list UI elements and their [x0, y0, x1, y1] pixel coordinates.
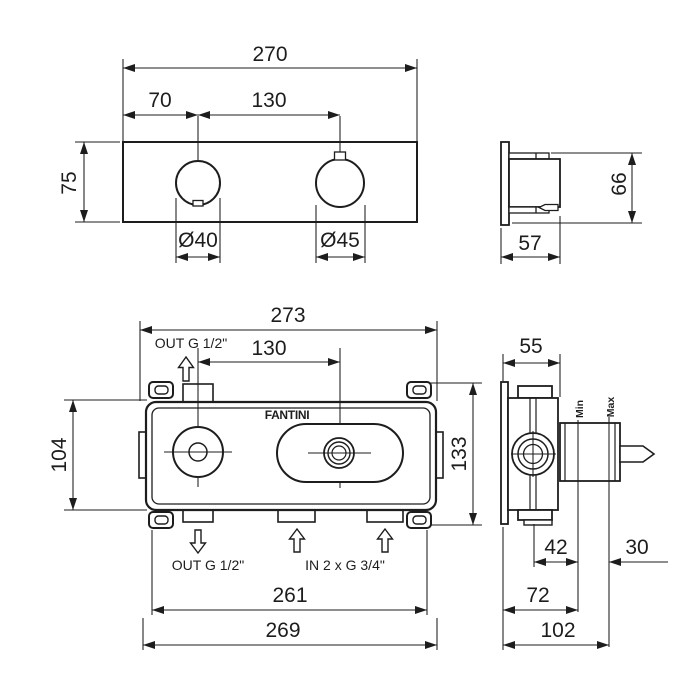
rough-side-top-flange — [518, 386, 552, 398]
rough-side-wall-plate — [501, 382, 508, 524]
dim-side-depth-label: 57 — [518, 232, 541, 255]
dim-knob-centers-label: 130 — [251, 89, 286, 112]
knob-right-index — [335, 152, 346, 160]
port-boss-bottom-right — [367, 510, 403, 522]
dim-min-to-max-label: 30 — [625, 536, 648, 559]
trim-side-body — [509, 159, 560, 207]
knob-right-circle — [316, 159, 364, 207]
mounting-ear-bottom-left — [149, 512, 173, 528]
dim-rough-depth-label: 55 — [519, 335, 542, 358]
dim-wall-to-min: 72 — [503, 584, 578, 610]
dim-trim-height-label: 75 — [58, 171, 81, 194]
dim-wall-to-min-label: 72 — [526, 584, 549, 607]
mounting-ear-bottom-right — [407, 512, 431, 528]
mounting-ear-top-right — [407, 382, 431, 398]
flow-down-arrow-out-icon — [191, 530, 206, 553]
dim-knob-centers: 130 — [198, 89, 340, 115]
dim-knob-offset-label: 70 — [148, 89, 171, 112]
trim-side-clip — [539, 205, 558, 211]
dim-rough-width-overall-label: 273 — [270, 304, 305, 327]
max-label: Max — [605, 397, 617, 418]
cartridge-spindle — [620, 446, 654, 462]
drawing-svg: 270 70 130 75 Ø40 — [0, 0, 700, 700]
dim-knob2-dia-label: Ø45 — [320, 229, 360, 252]
flow-up-arrow-in2-icon — [378, 529, 393, 552]
dim-rough-body-width: 269 — [143, 618, 437, 650]
dim-knob-offset: 70 — [123, 89, 198, 115]
technical-drawing-page: 270 70 130 75 Ø40 — [0, 0, 700, 700]
dim-knob1-dia-label: Ø40 — [178, 229, 218, 252]
port-boss-bottom-left — [183, 510, 213, 522]
dim-rough-body-width-label: 269 — [265, 619, 300, 642]
knob-left-circle — [176, 161, 220, 205]
dim-rough-centers-label: 130 — [251, 337, 286, 360]
trim-side-view: 66 57 — [501, 142, 642, 264]
flow-up-arrow-top-icon — [179, 357, 194, 381]
rough-side-bottom-flange — [518, 510, 552, 520]
rough-front-view: FANTINI OUT G 1/2" 273 130 104 133 — [48, 304, 482, 650]
label-in-bottom: IN 2 x G 3/4" — [305, 557, 385, 573]
brand-logo: FANTINI — [265, 408, 310, 422]
port-boss-bottom-center — [278, 510, 315, 522]
trim-side-wall-plate — [501, 142, 509, 225]
mounting-ear-top-left — [149, 382, 173, 398]
dim-rough-height-overall-label: 133 — [448, 436, 471, 471]
min-label: Min — [574, 400, 586, 418]
dim-wall-to-max-label: 102 — [540, 619, 575, 642]
cartridge-cylinder — [560, 423, 620, 481]
dim-min-to-max: 30 — [609, 536, 668, 562]
dim-side-height-label: 66 — [608, 172, 631, 195]
trim-plate — [123, 142, 417, 222]
dim-rough-height-body-label: 104 — [48, 437, 71, 472]
dim-wall-to-max: 102 — [503, 619, 609, 645]
flow-up-arrow-in1-icon — [290, 529, 305, 552]
knob-left-notch — [193, 201, 203, 207]
dim-rough-ports-span-label: 261 — [272, 584, 307, 607]
rough-side-bottom-step — [524, 520, 552, 525]
dim-trim-height: 75 — [58, 142, 120, 222]
dim-rough-height-body: 104 — [48, 400, 147, 510]
dim-center-to-min-label: 42 — [544, 536, 567, 559]
trim-front-view: 270 70 130 75 Ø40 — [58, 43, 417, 263]
dim-trim-width-label: 270 — [252, 43, 287, 66]
dim-center-to-min: 42 — [534, 536, 578, 562]
rough-side-view: Min Max 55 42 30 72 102 — [501, 335, 668, 650]
label-out-top: OUT G 1/2" — [155, 335, 227, 351]
label-out-bottom: OUT G 1/2" — [172, 557, 244, 573]
